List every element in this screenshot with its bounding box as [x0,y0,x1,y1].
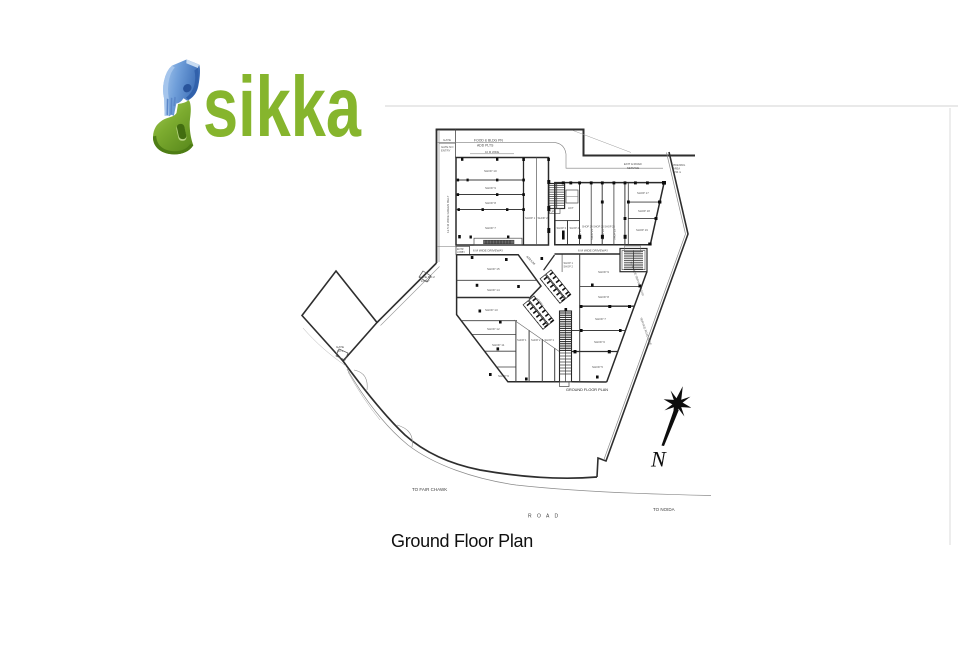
svg-text:sikka: sikka [203,60,362,155]
svg-text:SHOP 19: SHOP 19 [636,228,648,232]
svg-text:ADD PLTS: ADD PLTS [477,144,494,148]
svg-text:SHOP 17: SHOP 17 [637,191,649,195]
svg-text:SHOP 1: SHOP 1 [517,338,527,342]
svg-text:SHOP 7: SHOP 7 [485,226,496,230]
svg-text:SHOP 13: SHOP 13 [485,308,498,312]
svg-text:SERVICE ROAD WIDE: SERVICE ROAD WIDE [639,317,653,346]
svg-text:10 M WIDE: 10 M WIDE [485,150,499,154]
svg-text:UP: UP [551,210,555,214]
svg-text:SHOP 14: SHOP 14 [487,288,500,292]
svg-text:SHOP 9: SHOP 9 [485,186,496,190]
svg-text:R O A D: R O A D [528,514,560,520]
svg-text:ENTRY: ENTRY [421,279,430,283]
svg-text:234 m: 234 m [674,170,681,174]
svg-text:SHOP 10: SHOP 10 [484,169,497,173]
svg-text:SHOP 9: SHOP 9 [598,270,609,274]
svg-text:SHOP 8: SHOP 8 [485,201,496,205]
svg-text:SHOP 6: SHOP 6 [498,374,509,378]
svg-text:SHOP 24 SHOP 25 SHOP 26: SHOP 24 SHOP 25 SHOP 26 [582,226,616,229]
svg-text:LOBBY: LOBBY [457,251,465,254]
svg-text:SHOP 6: SHOP 6 [594,340,605,344]
svg-text:TO FAIR CHAWK: TO FAIR CHAWK [412,487,447,492]
svg-text:SERVICE: SERVICE [627,166,639,170]
svg-text:SHOP 21: SHOP 21 [590,229,594,240]
svg-text:FOOD & BLDG PN: FOOD & BLDG PN [474,139,503,143]
svg-text:SHOP 3: SHOP 3 [557,226,567,230]
svg-text:LOBBY: LOBBY [535,297,544,307]
svg-text:12.5 M WIDE GREEN BELT: 12.5 M WIDE GREEN BELT [446,195,450,233]
svg-text:SHOP 2: SHOP 2 [538,216,549,220]
svg-text:24 M WIDE SERVICE ROAD: 24 M WIDE SERVICE ROAD [629,261,645,296]
svg-text:SHOP 15: SHOP 15 [487,267,500,271]
svg-text:GATE NO.2: GATE NO.2 [419,275,435,279]
svg-text:SHOP 12: SHOP 12 [487,327,500,331]
svg-text:LIFT: LIFT [568,206,574,210]
svg-text:ATRIUM: ATRIUM [525,255,536,266]
svg-text:SHOP 7: SHOP 7 [595,317,606,321]
svg-text:WIDENING: WIDENING [672,163,685,167]
svg-text:SHOP 3: SHOP 3 [545,338,555,342]
svg-text:GROUND FLOOR PLAN: GROUND FLOOR PLAN [566,388,608,392]
svg-text:SHOP 11: SHOP 11 [492,343,505,347]
svg-text:NO.1: NO.1 [337,349,344,353]
svg-text:Ground Floor Plan: Ground Floor Plan [391,531,533,551]
svg-text:6 M WIDE DRIVEWAY: 6 M WIDE DRIVEWAY [578,249,608,253]
svg-text:SHOP 1: SHOP 1 [564,261,574,265]
svg-text:SHOP 23: SHOP 23 [613,229,617,240]
svg-text:AREA: AREA [673,167,680,171]
svg-text:GATE: GATE [443,138,451,142]
svg-text:ENTRY: ENTRY [441,148,451,152]
svg-text:SHOP 1: SHOP 1 [525,216,536,220]
svg-text:SHOP 5: SHOP 5 [592,365,603,369]
svg-text:SHOP 8: SHOP 8 [598,295,609,299]
svg-text:6 M WIDE DRIVEWAY: 6 M WIDE DRIVEWAY [473,249,503,253]
svg-text:N: N [650,447,667,472]
svg-text:SHOP 2: SHOP 2 [531,338,541,342]
svg-text:SHOP 2: SHOP 2 [564,265,574,269]
svg-text:GATE: GATE [336,345,344,349]
svg-text:SHOP 18: SHOP 18 [638,209,650,213]
svg-text:TO NOIDA: TO NOIDA [653,507,675,512]
